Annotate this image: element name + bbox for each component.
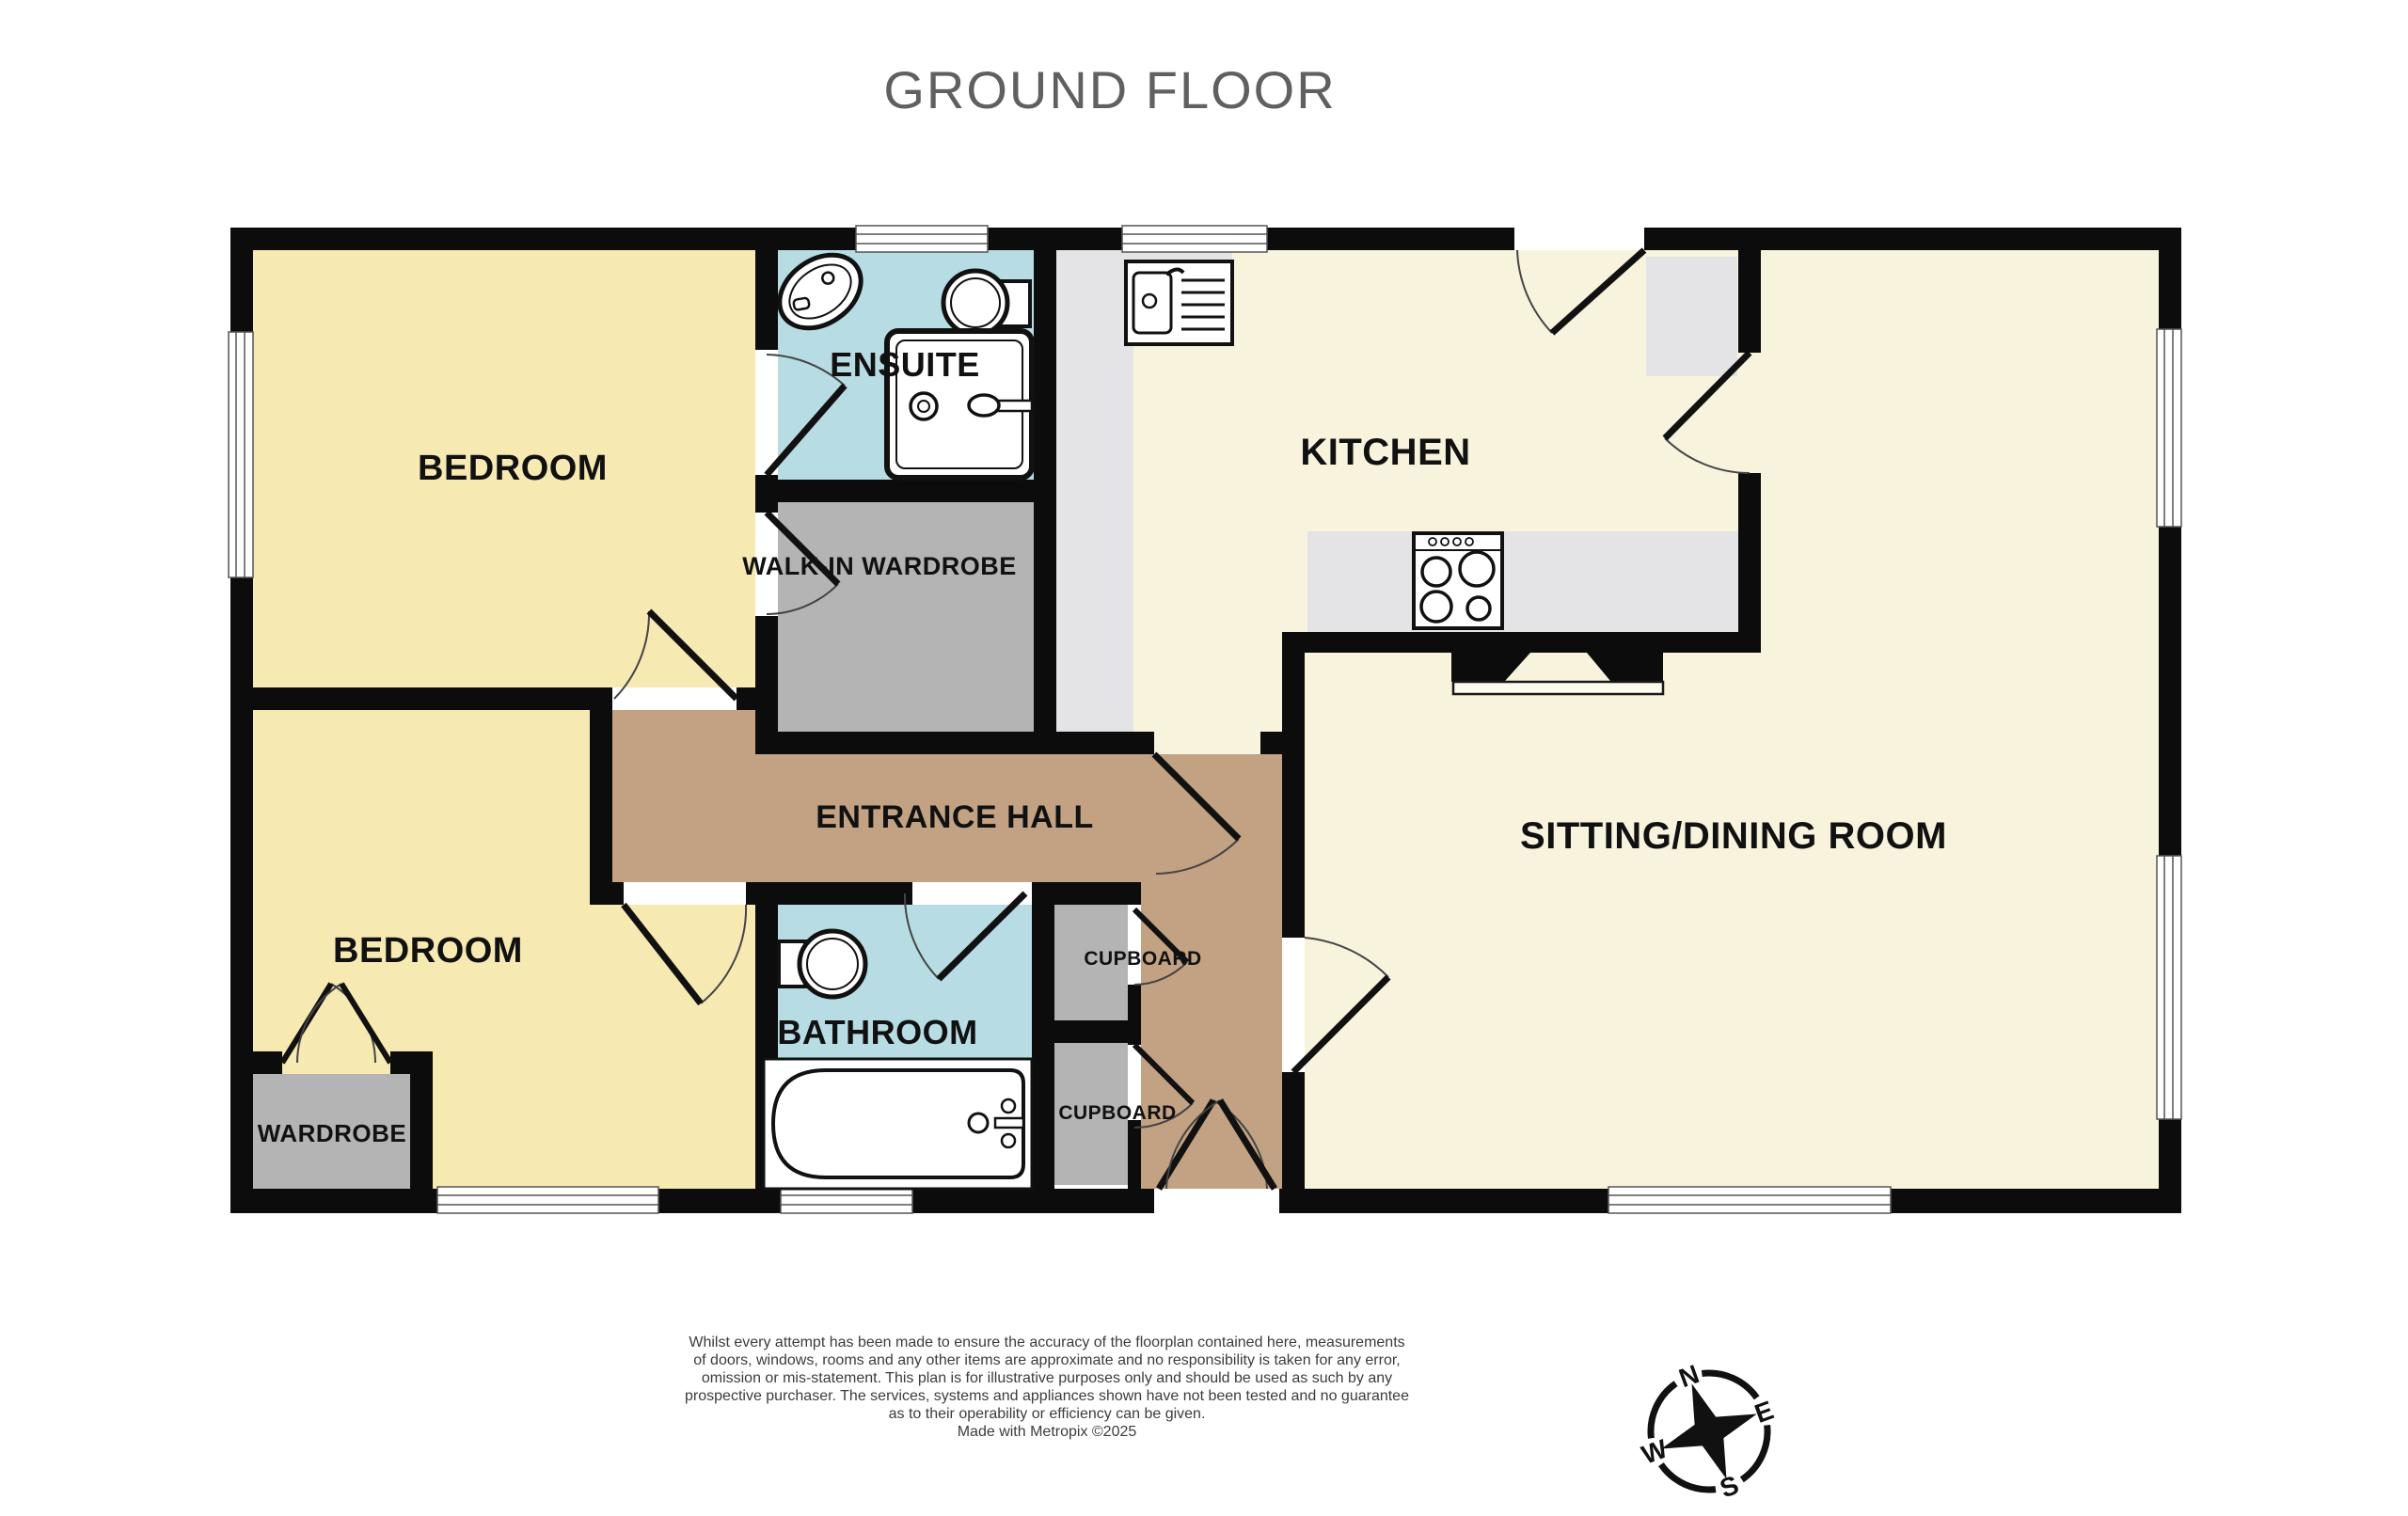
page-title: GROUND FLOOR (883, 60, 1336, 119)
label-bathroom: BATHROOM (777, 1013, 977, 1051)
fireplace-hearth (1453, 682, 1663, 694)
wall (1644, 228, 2181, 250)
label-walk-in-wardrobe: WALK-IN WARDROBE (742, 552, 1016, 580)
floorplan-page: BEDROOM ENSUITE WALK-IN WARDROBE KITCHEN… (0, 0, 2408, 1516)
disclaimer-line: as to their operability or efficiency ca… (889, 1406, 1206, 1422)
wall (778, 882, 912, 905)
wall (755, 250, 778, 350)
wall (230, 228, 856, 250)
window-ensuite-top (856, 226, 988, 252)
wall (737, 687, 778, 710)
wall (755, 616, 778, 732)
wall (230, 687, 612, 710)
kitchen-sink-icon (1126, 261, 1232, 344)
window-bathroom-bottom (781, 1187, 912, 1213)
label-wardrobe: WARDROBE (258, 1119, 407, 1147)
wall (1267, 228, 1514, 250)
compass-south: S (1716, 1470, 1742, 1504)
wall (746, 882, 778, 905)
compass-west: W (1638, 1433, 1671, 1469)
wall (1032, 882, 1141, 905)
wall (1738, 250, 1761, 353)
compass-north: N (1675, 1359, 1703, 1393)
wall (2159, 527, 2181, 856)
bath-icon (764, 1059, 1032, 1189)
wall (1282, 632, 1305, 938)
window-bedroom2-bottom (437, 1187, 658, 1213)
wall (1738, 473, 1761, 653)
disclaimer-line: of doors, windows, rooms and any other i… (693, 1352, 1400, 1368)
disclaimer-line: prospective purchaser. The services, sys… (685, 1388, 1409, 1404)
compass-east: E (1751, 1396, 1777, 1429)
room-sitting-dining-top (1759, 250, 2161, 653)
window-kitchen-top (1122, 226, 1267, 252)
wall (658, 1189, 781, 1213)
wall (2159, 228, 2181, 329)
kitchen-door-gap-floor (1738, 350, 1761, 475)
counter-right-block (1646, 257, 1737, 376)
room-walk-in-wardrobe (778, 502, 1034, 734)
wall (755, 480, 1055, 502)
room-entrance-hall-lower (1141, 882, 1282, 1189)
room-floors (253, 250, 2161, 1189)
label-kitchen: KITCHEN (1300, 432, 1470, 473)
wall (230, 1051, 282, 1074)
wall (1032, 1020, 1141, 1043)
room-sitting-dining (1305, 653, 2161, 1189)
wall (755, 732, 1154, 754)
wall (612, 882, 624, 905)
wall (230, 1189, 437, 1213)
wall (1279, 1189, 1608, 1213)
wall (410, 1051, 433, 1189)
label-cupboard-lower: CUPBOARD (1058, 1102, 1176, 1124)
window-sitting-bottom (1608, 1187, 1891, 1213)
label-cupboard-upper: CUPBOARD (1084, 948, 1201, 970)
label-bedroom2: BEDROOM (333, 931, 523, 971)
stove-icon (1414, 533, 1502, 628)
wall (1034, 250, 1056, 754)
label-entrance-hall: ENTRANCE HALL (816, 799, 1093, 835)
wall (590, 687, 612, 905)
wall (2159, 1119, 2181, 1213)
wall (988, 228, 1122, 250)
room-kitchen-walkway (1133, 650, 1282, 754)
compass-star (1644, 1366, 1774, 1496)
window-sitting-right-lower (2157, 856, 2181, 1119)
counter-bottom-run (1307, 531, 1740, 635)
window-sitting-right-upper (2157, 329, 2181, 527)
wall (230, 228, 253, 332)
toilet-icon-bathroom (779, 931, 865, 997)
disclaimer: Whilst every attempt has been made to en… (685, 1334, 1409, 1440)
fireplace (1451, 652, 1663, 694)
window-bedroom1-left (229, 332, 253, 577)
wall (1282, 1072, 1305, 1189)
wall (1032, 905, 1054, 1189)
room-bedroom2-ext (590, 905, 755, 1189)
floorplan-canvas: BEDROOM ENSUITE WALK-IN WARDROBE KITCHEN… (0, 0, 2408, 1516)
wall (912, 1189, 1154, 1213)
disclaimer-line: omission or mis-statement. This plan is … (702, 1370, 1392, 1386)
toilet-icon-ensuite (943, 271, 1030, 335)
wall (1282, 632, 1759, 653)
wall (1891, 1189, 2181, 1213)
disclaimer-credit: Made with Metropix ©2025 (958, 1424, 1137, 1440)
compass-icon: N E S W (1618, 1339, 1798, 1516)
label-bedroom1: BEDROOM (418, 449, 608, 488)
label-ensuite: ENSUITE (830, 345, 980, 384)
wall (230, 577, 253, 1213)
label-sitting-dining: SITTING/DINING ROOM (1520, 815, 1947, 857)
wall (1128, 1120, 1141, 1189)
disclaimer-line: Whilst every attempt has been made to en… (689, 1334, 1404, 1350)
